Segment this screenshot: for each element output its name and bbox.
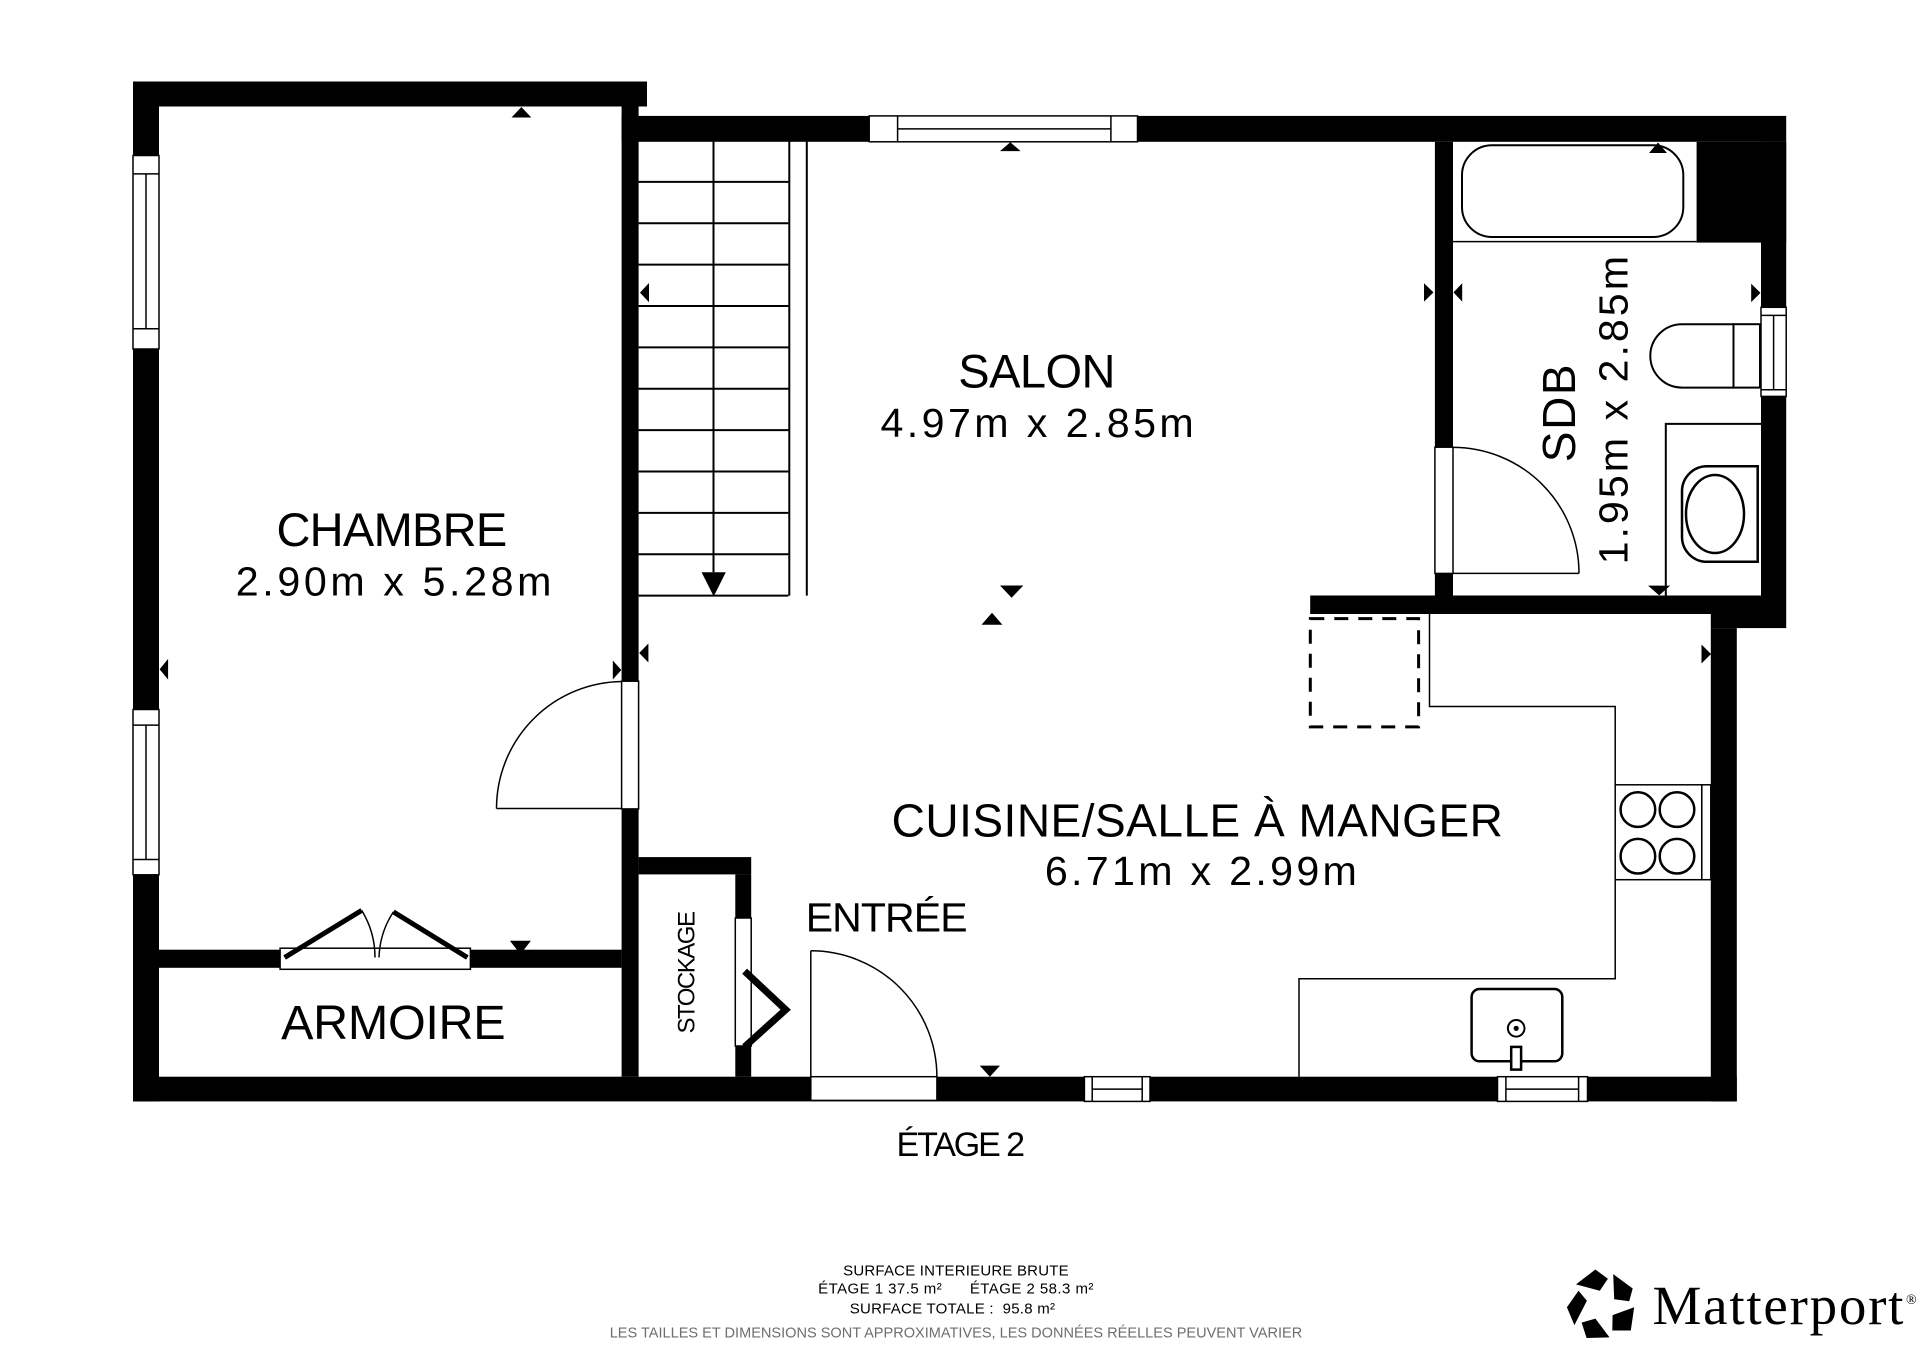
svg-text:SDB: SDB <box>1533 363 1585 462</box>
svg-text:1.95m x 2.85m: 1.95m x 2.85m <box>1590 253 1636 564</box>
svg-text:STOCKAGE: STOCKAGE <box>674 912 701 1033</box>
svg-text:2.90m x 5.28m: 2.90m x 5.28m <box>236 559 555 605</box>
svg-text:ENTRÉE: ENTRÉE <box>806 895 967 941</box>
svg-text:ÉTAGE 1 37.5 m² ÉTAGE 2 5: ÉTAGE 1 37.5 m² ÉTAGE 2 58.3 m² <box>818 1281 1094 1298</box>
svg-text:6.71m x 2.99m: 6.71m x 2.99m <box>1045 848 1360 894</box>
svg-text:ARMOIRE: ARMOIRE <box>281 996 505 1050</box>
svg-text:4.97m x 2.85m: 4.97m x 2.85m <box>880 400 1197 446</box>
svg-text:CHAMBRE: CHAMBRE <box>276 503 506 556</box>
svg-text:CUISINE/SALLE À MANGER: CUISINE/SALLE À MANGER <box>892 795 1504 847</box>
svg-text:LES TAILLES ET DIMENSIONS SONT: LES TAILLES ET DIMENSIONS SONT APPROXIMA… <box>610 1325 1303 1342</box>
svg-text:SALON: SALON <box>958 344 1115 397</box>
svg-text:SURFACE TOTALE : 95.8 m²: SURFACE TOTALE : 95.8 m² <box>850 1300 1055 1317</box>
svg-text:Matterport: Matterport <box>1653 1275 1906 1336</box>
svg-text:ÉTAGE 2: ÉTAGE 2 <box>897 1126 1025 1164</box>
svg-text:®: ® <box>1906 1293 1917 1308</box>
svg-text:SURFACE INTERIEURE BRUTE: SURFACE INTERIEURE BRUTE <box>843 1262 1069 1279</box>
